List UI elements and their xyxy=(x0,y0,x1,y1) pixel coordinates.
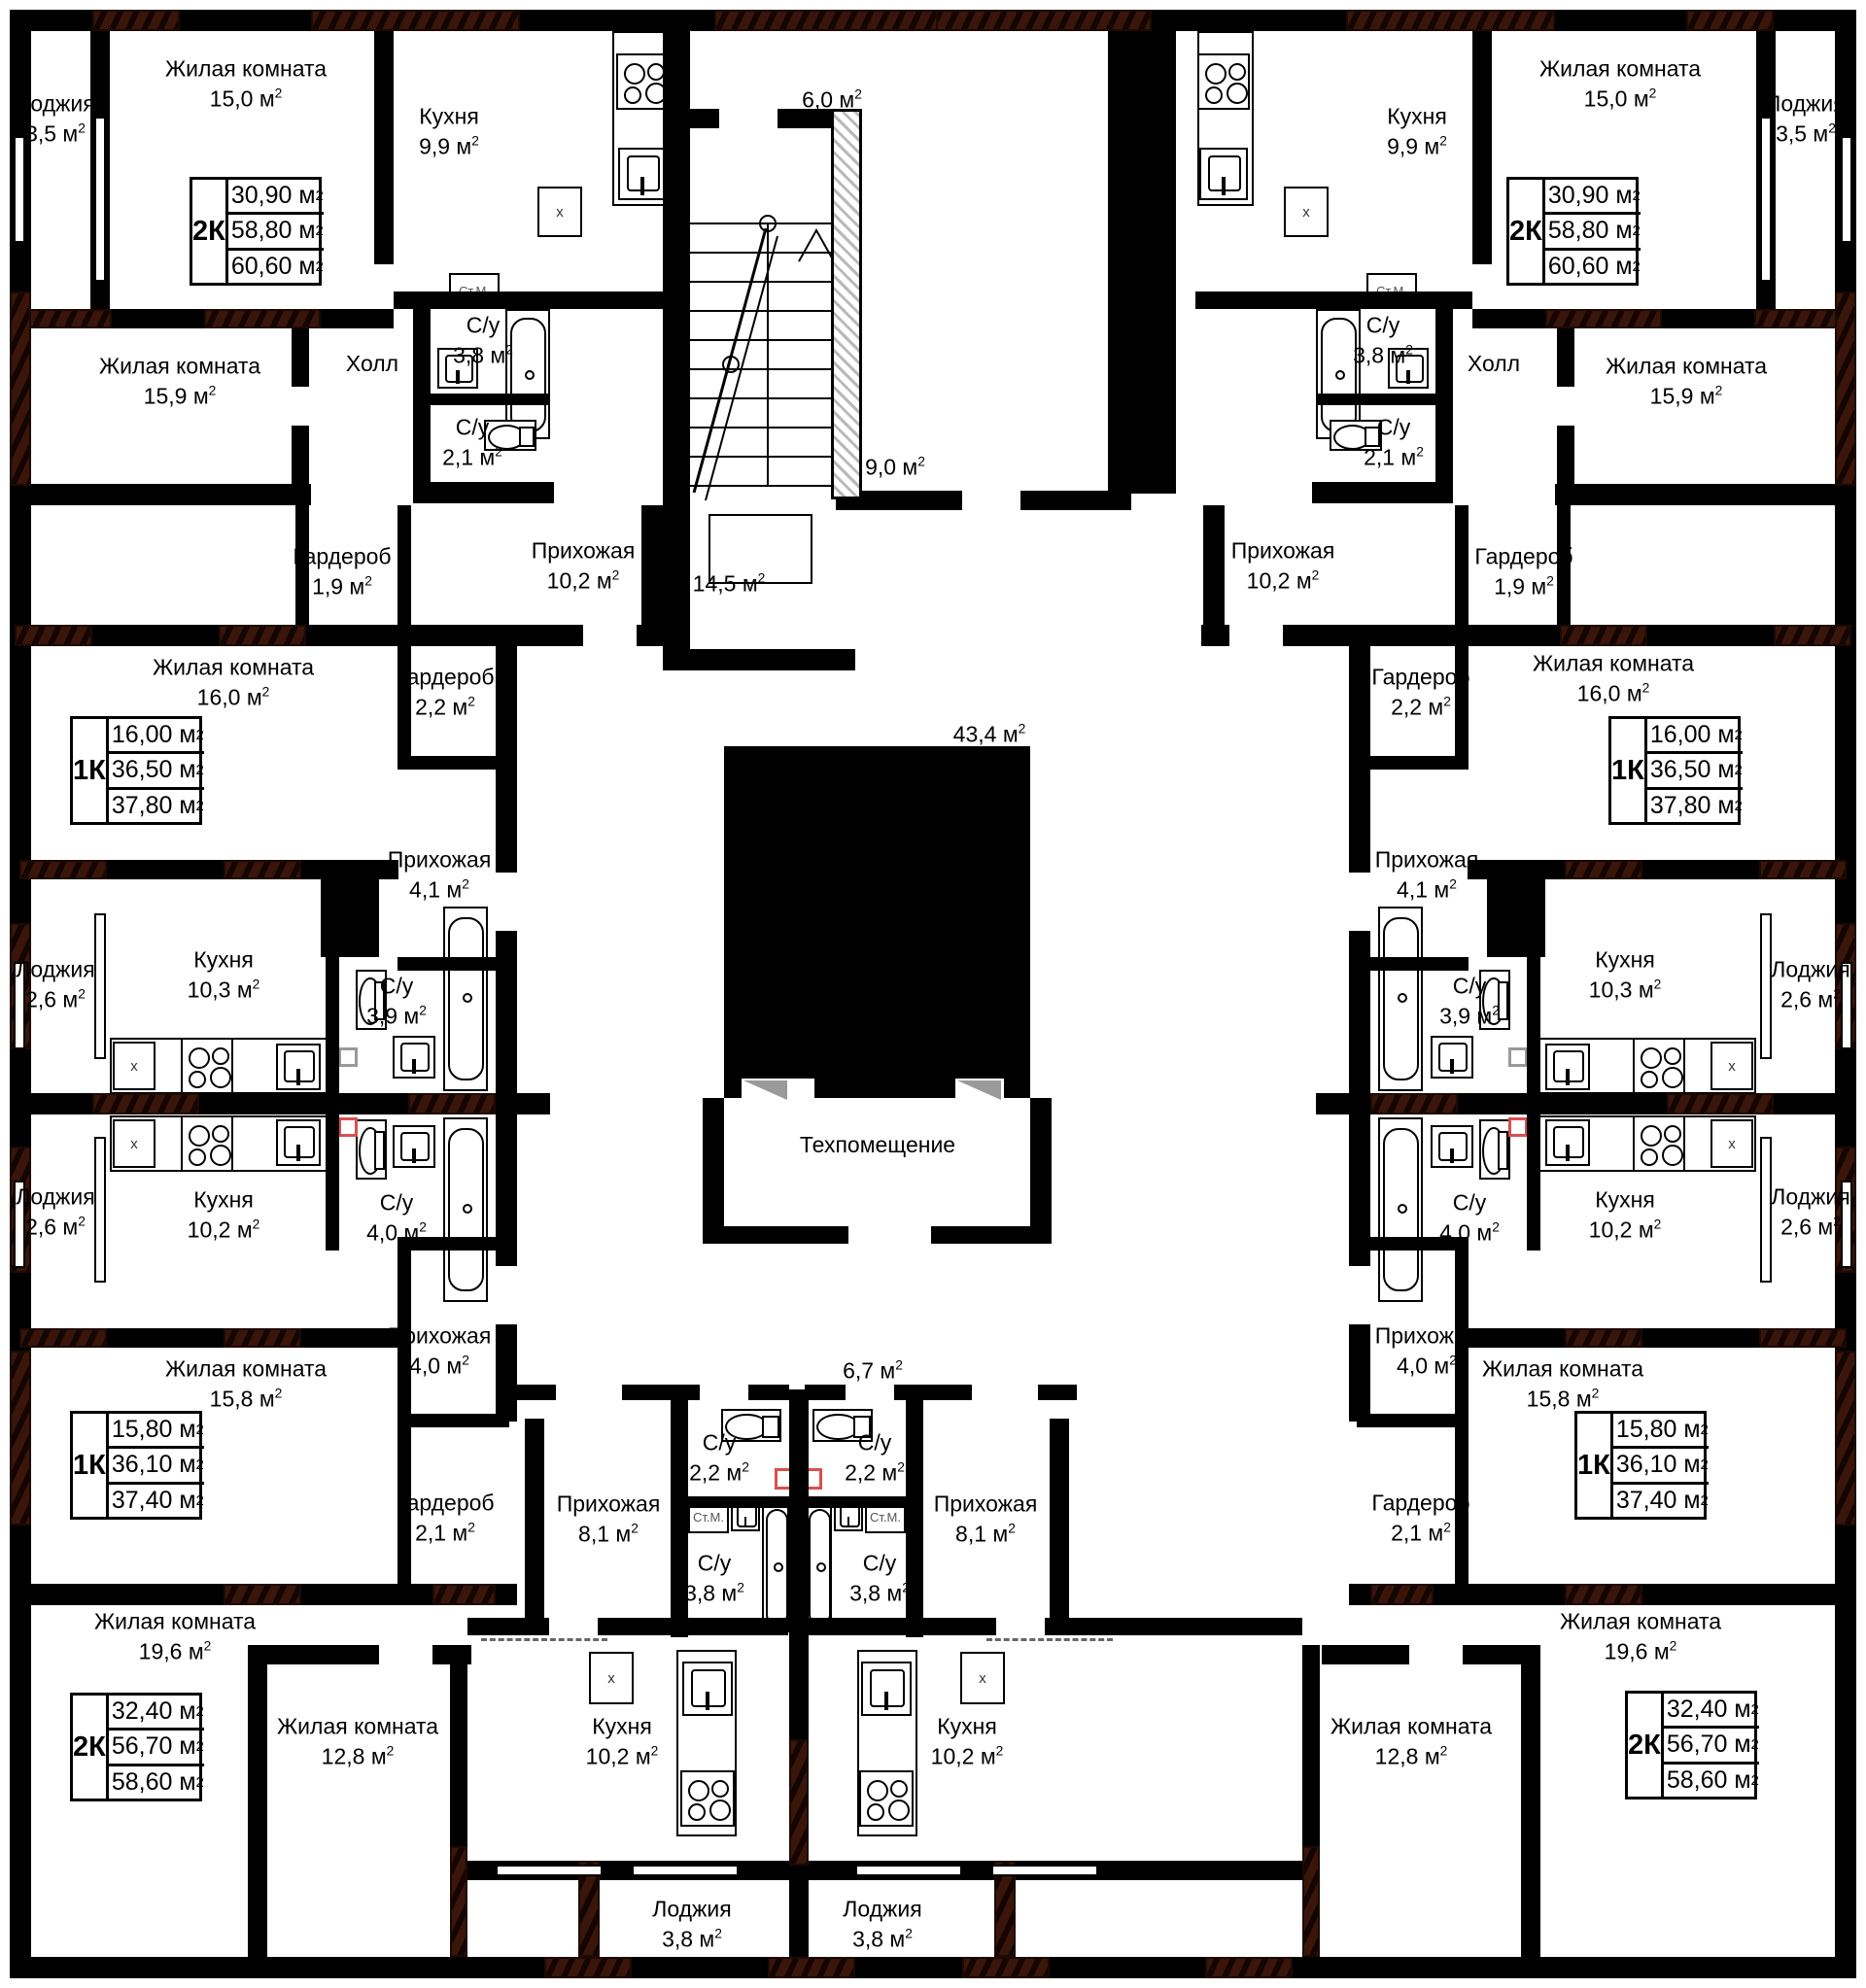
kitchen-sink-icon xyxy=(1199,148,1248,200)
room-label-bl_living196: Жилая комната19,6 м2 xyxy=(94,1609,256,1664)
room-area: 2,1 м2 xyxy=(1364,440,1424,470)
tap xyxy=(640,177,644,195)
room-label-tr_su21: С/у2,1 м2 xyxy=(1364,415,1424,470)
room-area: 3,8 м2 xyxy=(849,1576,910,1606)
tap xyxy=(1222,177,1226,195)
wall xyxy=(10,1957,1856,1978)
wall-hatch xyxy=(1686,10,1774,31)
stove-icon xyxy=(859,1770,914,1827)
burner xyxy=(210,1145,231,1166)
stove-icon xyxy=(616,53,669,110)
room-name: Гардероб xyxy=(1371,1491,1469,1516)
room-area: 3,8 м2 xyxy=(684,1576,744,1606)
burner xyxy=(688,1803,706,1821)
burner xyxy=(189,1047,210,1069)
room-label-mr_prihozhaya: Прихожая4,1 м2 xyxy=(1375,847,1479,903)
wall xyxy=(292,426,309,484)
wall xyxy=(1108,31,1176,494)
wall-hatch xyxy=(544,1957,632,1978)
room-name: Лоджия xyxy=(1771,1184,1850,1210)
wall-hatch xyxy=(1835,291,1856,486)
appliance-box-icon: x xyxy=(1710,1042,1753,1090)
room-area: 15,0 м2 xyxy=(165,82,327,112)
room-name: Прихожая xyxy=(1375,847,1479,873)
wall xyxy=(598,1618,788,1635)
wall-hatch xyxy=(1759,860,1847,879)
room-area: 16,0 м2 xyxy=(153,680,314,710)
room-name: Лоджия xyxy=(16,91,95,117)
apartment-areas: 30,90 м258,80 м260,60 м2 xyxy=(1542,180,1641,283)
room-label-bl_su38: С/у3,8 м2 xyxy=(684,1551,744,1606)
drain xyxy=(1335,370,1345,380)
room-area: 4,0 м2 xyxy=(1439,1216,1500,1246)
room-area: 8,1 м2 xyxy=(557,1517,661,1547)
window xyxy=(991,1865,1098,1876)
tap xyxy=(412,1148,415,1163)
room-name: С/у xyxy=(442,415,502,440)
wall xyxy=(10,625,665,646)
room-label-tl_loggia: Лоджия3,5 м2 xyxy=(16,91,95,147)
wall xyxy=(267,1645,379,1664)
room-name: Кухня xyxy=(586,1714,659,1739)
room-name: С/у xyxy=(366,974,427,999)
wall xyxy=(1201,625,1856,646)
wall xyxy=(703,1098,724,1234)
wall xyxy=(1126,1618,1302,1635)
room-label-c_90: 9,0 м2 xyxy=(865,450,925,480)
appliance-mark: x xyxy=(115,1044,154,1088)
apartment-area-value: 56,70 м2 xyxy=(1664,1729,1759,1764)
room-name: Прихожая xyxy=(557,1491,661,1517)
room-area: 9,0 м2 xyxy=(865,450,925,480)
room-area: 3,8 м2 xyxy=(453,338,513,368)
wall xyxy=(1357,957,1469,971)
burner xyxy=(189,1071,206,1088)
burner xyxy=(1228,63,1246,81)
room-name: Гардероб xyxy=(396,665,494,690)
bathtub-icon xyxy=(443,1117,488,1302)
apartment-info-box-br2k: 2К32,40 м256,70 м258,60 м2 xyxy=(1625,1691,1757,1799)
room-area: 4,0 м2 xyxy=(388,1349,492,1379)
elevator-core xyxy=(724,746,1030,1098)
room-label-ml_kitchen_a: Кухня10,3 м2 xyxy=(188,947,260,1003)
apartment-area-value: 37,40 м2 xyxy=(1613,1485,1709,1517)
room-area: 10,2 м2 xyxy=(1231,564,1335,594)
wall-hatch xyxy=(1565,1328,1642,1348)
wall-hatch xyxy=(92,10,180,31)
apartment-area-value: 30,90 м2 xyxy=(1545,180,1641,215)
wall xyxy=(1357,1414,1469,1427)
room-name: Жилая комната xyxy=(1606,354,1767,379)
room-label-c_60: 6,0 м2 xyxy=(802,83,862,113)
wall xyxy=(321,879,379,957)
room-name: С/у xyxy=(849,1551,910,1576)
room-area: 1,9 м2 xyxy=(293,569,391,600)
bathtub-icon xyxy=(1378,1117,1423,1302)
tap xyxy=(456,370,459,384)
burner xyxy=(189,1148,206,1166)
kitchen-sink-icon xyxy=(618,148,667,200)
bathtub-icon xyxy=(762,1500,789,1632)
wall xyxy=(1050,1419,1069,1632)
appliance-mark: x xyxy=(1286,189,1327,235)
room-label-mr_loggia_a: Лоджия2,6 м2 xyxy=(1771,957,1850,1012)
burner xyxy=(709,1799,731,1821)
wall-hatch xyxy=(224,860,301,879)
wall-hatch xyxy=(1370,1093,1458,1114)
room-name: Прихожая xyxy=(388,847,492,873)
wall-hatch xyxy=(10,291,31,486)
apartment-area-value: 15,80 м2 xyxy=(109,1414,204,1449)
stove-icon xyxy=(181,1115,233,1172)
appliance-box-icon: x xyxy=(1284,187,1329,237)
room-label-tl_su38: С/у3,8 м2 xyxy=(453,313,513,368)
room-label-mr_kitchen_b: Кухня10,2 м2 xyxy=(1589,1187,1662,1243)
wall-hatch xyxy=(204,309,321,328)
burner xyxy=(1664,1047,1681,1065)
window xyxy=(94,913,106,1059)
toilet-icon xyxy=(356,1119,387,1180)
room-name: Жилая комната xyxy=(165,56,327,82)
highlight-ring-gray xyxy=(338,1047,358,1067)
room-area: 3,8 м2 xyxy=(652,1922,732,1952)
apartment-area-value: 15,80 м2 xyxy=(1613,1414,1709,1449)
wall xyxy=(1203,505,1225,625)
door-swing-wedge xyxy=(743,1080,787,1100)
room-name: С/у xyxy=(1364,415,1424,440)
burner xyxy=(1664,1125,1681,1143)
burner xyxy=(711,1780,729,1798)
room-label-bl_living128: Жилая комната12,8 м2 xyxy=(277,1714,438,1769)
section-dash-line xyxy=(481,1638,607,1641)
highlight-ring-red xyxy=(1508,1117,1528,1137)
room-label-c_434: 43,4 м2 xyxy=(953,717,1026,747)
wall xyxy=(374,31,394,264)
room-name: Прихожая xyxy=(1375,1323,1479,1349)
shaft-wall xyxy=(831,109,862,499)
apartment-type: 1К xyxy=(1577,1414,1610,1517)
wall xyxy=(1349,625,1370,873)
wall-hatch xyxy=(1774,625,1851,646)
window xyxy=(1841,136,1852,243)
room-name: Жилая комната xyxy=(153,655,314,680)
room-area: 10,3 м2 xyxy=(188,973,260,1003)
bathtub-icon xyxy=(443,907,488,1091)
room-label-bl_garderob21: Гардероб2,1 м2 xyxy=(396,1491,494,1546)
room-area: 10,2 м2 xyxy=(188,1213,260,1243)
room-name: Лоджия xyxy=(1771,957,1850,982)
highlight-ring-gray xyxy=(1508,1047,1528,1067)
tap xyxy=(744,1517,746,1527)
wall xyxy=(894,1385,923,1400)
window xyxy=(1760,913,1772,1059)
window xyxy=(94,1137,106,1283)
bath-sink-icon xyxy=(393,1036,435,1079)
wall-hatch xyxy=(450,1846,467,1957)
wall xyxy=(703,1226,848,1244)
wall xyxy=(789,1389,809,1957)
room-area: 3,5 м2 xyxy=(16,117,95,147)
wall-hatch xyxy=(1346,10,1555,31)
room-label-ml_loggia_a: Лоджия2,6 м2 xyxy=(16,957,95,1012)
wall xyxy=(1317,394,1453,405)
burner xyxy=(890,1780,908,1798)
section-dash-line xyxy=(986,1638,1113,1641)
room-area: 4,1 м2 xyxy=(388,873,492,903)
room-area: 8,1 м2 xyxy=(934,1517,1038,1547)
apartment-info-box-ml1k: 1К16,00 м236,50 м237,80 м2 xyxy=(70,716,202,825)
room-label-ml_prihozhaya: Прихожая4,1 м2 xyxy=(388,847,492,903)
burner xyxy=(1227,83,1248,104)
bathtub-icon xyxy=(805,1500,832,1632)
room-name: С/у xyxy=(689,1430,749,1456)
window xyxy=(632,1865,739,1876)
wall xyxy=(10,484,311,505)
room-area: 2,6 м2 xyxy=(16,982,95,1012)
apartment-area-value: 58,80 м2 xyxy=(1545,215,1641,250)
room-label-tr_hall: Холл xyxy=(1468,351,1520,376)
apartment-areas: 32,40 м256,70 м258,60 м2 xyxy=(106,1696,204,1799)
apartment-area-value: 60,60 м2 xyxy=(1545,251,1641,283)
room-label-c_67: 6,7 м2 xyxy=(843,1354,903,1384)
apartment-areas: 15,80 м236,10 м237,40 м2 xyxy=(106,1414,204,1517)
appliance-box-icon: x xyxy=(113,1119,155,1168)
wall xyxy=(1455,505,1469,625)
wall xyxy=(1038,1385,1077,1400)
wall xyxy=(326,1114,339,1251)
room-label-br_prihozhaya40: Прихожая4,0 м2 xyxy=(1375,1323,1479,1379)
room-label-tr_su38: С/у3,8 м2 xyxy=(1353,313,1413,368)
wall-hatch xyxy=(928,10,1152,31)
apartment-area-value: 36,10 м2 xyxy=(1613,1449,1709,1484)
room-area: 12,8 м2 xyxy=(1330,1739,1492,1769)
wall-hatch xyxy=(1205,1957,1293,1978)
room-label-br_garderob21: Гардероб2,1 м2 xyxy=(1371,1491,1469,1546)
room-name: Лоджия xyxy=(16,957,95,982)
wall xyxy=(1557,426,1574,484)
room-area: 6,7 м2 xyxy=(843,1354,903,1384)
toilet-tank xyxy=(374,1131,385,1170)
room-name: Жилая комната xyxy=(94,1609,256,1634)
wall xyxy=(663,649,855,670)
tap xyxy=(1450,1059,1453,1074)
apartment-info-box-tr2k: 2К30,90 м258,80 м260,60 м2 xyxy=(1506,177,1639,286)
room-label-br_living158: Жилая комната15,8 м2 xyxy=(1482,1356,1643,1412)
wall xyxy=(1020,491,1131,510)
room-area: 10,2 м2 xyxy=(586,1739,659,1769)
room-area: 15,9 м2 xyxy=(99,379,260,409)
burner xyxy=(688,1780,709,1801)
room-label-br_kitchen102: Кухня10,2 м2 xyxy=(931,1714,1004,1769)
room-label-ml_su39: С/у3,9 м2 xyxy=(366,974,427,1029)
room-name: Лоджия xyxy=(652,1897,732,1922)
room-area: 4,0 м2 xyxy=(366,1216,427,1246)
kitchen-sink-icon xyxy=(1545,1044,1590,1090)
tap xyxy=(884,1692,888,1711)
room-area: 2,2 м2 xyxy=(1371,690,1469,720)
drain xyxy=(525,370,535,380)
room-label-bl_living158: Жилая комната15,8 м2 xyxy=(165,1356,327,1412)
kitchen-sink-icon xyxy=(1545,1119,1590,1166)
wall xyxy=(1312,482,1453,503)
burner xyxy=(867,1803,884,1821)
apartment-areas: 15,80 м236,10 м237,40 м2 xyxy=(1610,1414,1709,1517)
tap xyxy=(1406,370,1409,384)
room-label-tl_prihozhaya: Прихожая10,2 м2 xyxy=(532,538,636,594)
appliance-mark: x xyxy=(1712,1121,1751,1166)
stove-icon xyxy=(680,1770,735,1827)
apartment-area-value: 16,00 м2 xyxy=(109,719,204,754)
wall-hatch xyxy=(1835,1351,1856,1525)
room-area: 2,2 м2 xyxy=(845,1456,905,1486)
wall xyxy=(1555,484,1856,505)
room-label-tr_garderob: Гардероб1,9 м2 xyxy=(1474,544,1572,600)
appliance-box-icon: x xyxy=(589,1652,634,1704)
toilet-tank xyxy=(519,427,535,447)
room-name: Жилая комната xyxy=(1482,1356,1643,1382)
apartment-area-value: 36,10 м2 xyxy=(109,1449,204,1484)
wall-hatch xyxy=(19,860,107,879)
room-name: Гардероб xyxy=(1474,544,1572,569)
tap xyxy=(412,1059,415,1074)
room-name: Жилая комната xyxy=(1539,56,1701,82)
burner xyxy=(210,1067,231,1088)
room-label-tl_garderob: Гардероб1,9 м2 xyxy=(293,544,391,600)
room-name: Холл xyxy=(1468,351,1520,376)
appliance-mark: x xyxy=(1712,1044,1751,1088)
room-area: 4,1 м2 xyxy=(1375,873,1479,903)
room-area: 16,0 м2 xyxy=(1533,676,1694,706)
room-area: 15,8 м2 xyxy=(165,1382,327,1412)
wall xyxy=(525,1419,544,1632)
wall xyxy=(1521,1645,1540,1957)
room-area: 15,0 м2 xyxy=(1539,82,1701,112)
stove-icon xyxy=(1633,1115,1685,1172)
wall-hatch xyxy=(714,10,938,31)
apartment-type: 2К xyxy=(1509,180,1542,283)
stove-icon xyxy=(1197,53,1250,110)
apartment-area-value: 58,60 м2 xyxy=(109,1766,204,1799)
room-label-tl_hall: Холл xyxy=(346,351,398,376)
room-label-br_loggia38: Лоджия3,8 м2 xyxy=(843,1897,922,1952)
wall-hatch xyxy=(10,1351,31,1525)
tap xyxy=(296,1145,299,1161)
room-area: 1,9 м2 xyxy=(1474,569,1572,600)
room-area: 3,9 м2 xyxy=(366,999,427,1029)
wall xyxy=(397,756,509,770)
wall-hatch xyxy=(1302,1846,1320,1957)
bath-sink-icon xyxy=(1431,1125,1473,1168)
room-name: Техпомещение xyxy=(800,1132,955,1157)
wall xyxy=(1045,1618,1126,1635)
basin xyxy=(840,1505,860,1526)
window xyxy=(496,1865,603,1876)
door-swing-wedge xyxy=(957,1080,1001,1100)
room-name: С/у xyxy=(1439,1190,1500,1216)
apartment-info-box-br1k: 1К15,80 м236,10 м237,40 м2 xyxy=(1574,1411,1707,1520)
room-label-tl_living1: Жилая комната15,0 м2 xyxy=(165,56,327,112)
room-label-c_145: 14,5 м2 xyxy=(693,566,766,597)
room-label-tr_living2: Жилая комната15,9 м2 xyxy=(1606,354,1767,409)
bath-sink-icon xyxy=(393,1125,435,1168)
wall xyxy=(1557,328,1574,387)
burner xyxy=(888,1799,910,1821)
room-name: Лоджия xyxy=(843,1897,922,1922)
room-area: 43,4 м2 xyxy=(953,717,1026,747)
wall-hatch xyxy=(224,1584,301,1605)
room-name: Прихожая xyxy=(388,1323,492,1349)
room-name: С/у xyxy=(453,313,513,338)
room-area: 14,5 м2 xyxy=(693,566,766,597)
toilet-tank xyxy=(762,1416,779,1438)
wall-hatch xyxy=(19,1328,107,1348)
room-area: 12,8 м2 xyxy=(277,1739,438,1769)
room-name: Прихожая xyxy=(934,1491,1038,1517)
apartment-area-value: 58,60 м2 xyxy=(1664,1765,1759,1797)
room-area: 2,6 м2 xyxy=(1771,982,1850,1012)
stove-icon xyxy=(181,1038,233,1094)
burner xyxy=(624,63,645,85)
toilet-icon xyxy=(1479,1119,1510,1180)
wall-hatch xyxy=(1667,1093,1774,1114)
room-label-bl_prihozhaya81: Прихожая8,1 м2 xyxy=(557,1491,661,1547)
room-name: Жилая комната xyxy=(1330,1714,1492,1739)
room-label-ml_kitchen_b: Кухня10,2 м2 xyxy=(188,1187,260,1243)
wall-hatch xyxy=(432,1584,496,1605)
wall xyxy=(671,1496,789,1508)
room-area: 3,5 м2 xyxy=(1766,117,1846,147)
room-label-mr_loggia_b: Лоджия2,6 м2 xyxy=(1771,1184,1850,1240)
room-area: 15,8 м2 xyxy=(1482,1382,1643,1412)
apartment-info-box-bl1k: 1К15,80 м236,10 м237,40 м2 xyxy=(70,1411,202,1520)
room-area: 2,1 м2 xyxy=(1371,1516,1469,1546)
appliance-box-icon: x xyxy=(960,1652,1005,1704)
apartment-type: 1К xyxy=(1611,719,1644,822)
burner xyxy=(1641,1071,1658,1088)
wall-hatch xyxy=(408,1093,496,1114)
wall xyxy=(1357,756,1469,770)
wall xyxy=(1322,1645,1409,1664)
room-name: Кухня xyxy=(188,947,260,973)
door-opening xyxy=(1229,625,1283,646)
burner xyxy=(867,1780,888,1801)
appliance-box-icon: x xyxy=(113,1042,155,1090)
apartment-area-value: 60,60 м2 xyxy=(228,251,324,283)
room-label-bl_prihozhaya40: Прихожая4,0 м2 xyxy=(388,1323,492,1379)
wall xyxy=(496,625,517,873)
apartment-area-value: 37,40 м2 xyxy=(109,1485,204,1517)
appliance-box-icon: x xyxy=(1710,1119,1753,1168)
apartment-info-box-tl2k: 2К30,90 м258,80 м260,60 м2 xyxy=(190,177,322,286)
room-label-mr_garderob: Гардероб2,2 м2 xyxy=(1371,665,1469,720)
room-label-br_su38: С/у3,8 м2 xyxy=(849,1551,910,1606)
room-name: С/у xyxy=(1439,974,1500,999)
apartment-area-value: 36,50 м2 xyxy=(109,754,204,789)
burner xyxy=(212,1125,229,1143)
apartment-info-box-mr1k: 1К16,00 м236,50 м237,80 м2 xyxy=(1608,716,1741,825)
tap xyxy=(706,1692,709,1711)
burner xyxy=(1662,1145,1683,1166)
wall xyxy=(805,1385,846,1400)
wall xyxy=(326,957,339,1093)
room-name: Холл xyxy=(346,351,398,376)
wall xyxy=(641,505,663,625)
room-name: С/у xyxy=(845,1430,905,1456)
wall xyxy=(517,1385,556,1400)
room-area: 2,2 м2 xyxy=(396,690,494,720)
tap xyxy=(847,1517,849,1527)
apartment-areas: 16,00 м236,50 м237,80 м2 xyxy=(1644,719,1743,822)
